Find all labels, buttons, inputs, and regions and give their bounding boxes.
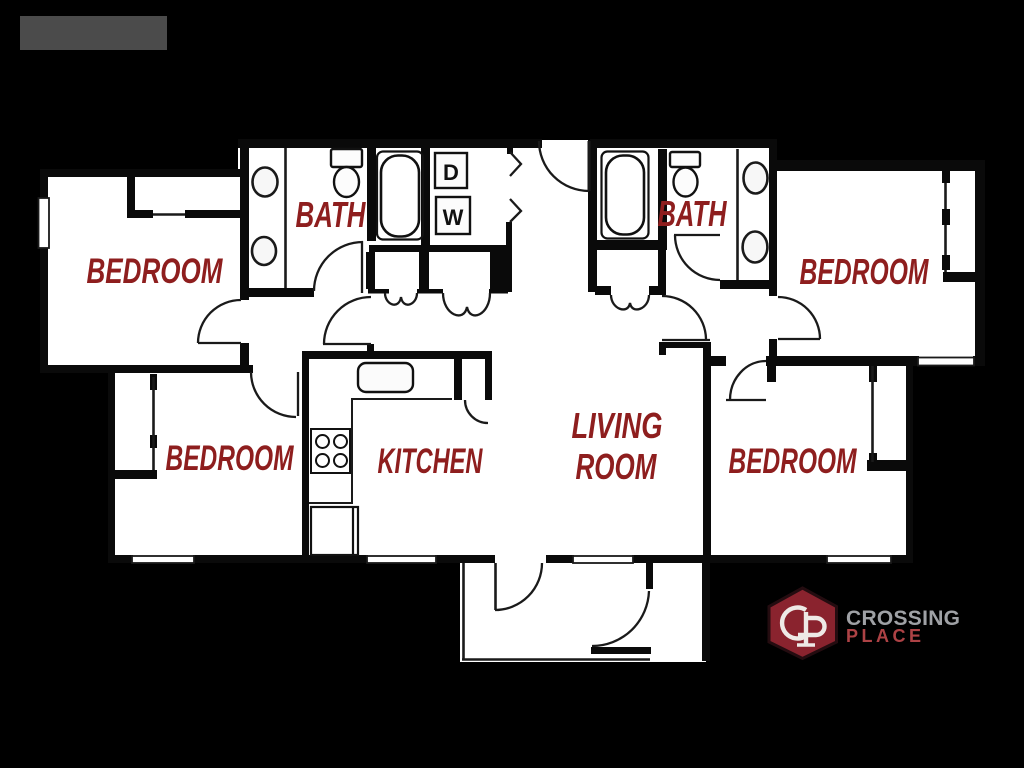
svg-text:BATH: BATH (658, 193, 728, 234)
svg-text:PLACE: PLACE (846, 626, 921, 646)
svg-text:BEDROOM: BEDROOM (87, 252, 224, 291)
svg-text:BEDROOM: BEDROOM (800, 251, 930, 292)
svg-text:D: D (443, 160, 459, 185)
svg-text:W: W (443, 205, 464, 230)
svg-text:BATH: BATH (296, 194, 367, 235)
svg-text:BEDROOM: BEDROOM (729, 442, 858, 481)
svg-text:ROOM: ROOM (576, 446, 658, 487)
svg-text:LIVING: LIVING (572, 405, 663, 446)
svg-text:BEDROOM: BEDROOM (166, 439, 295, 478)
svg-text:KITCHEN: KITCHEN (378, 442, 483, 481)
